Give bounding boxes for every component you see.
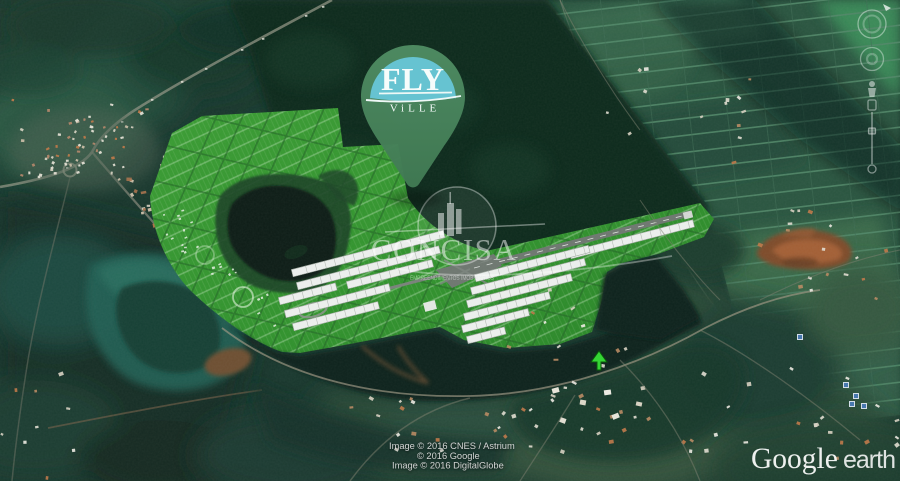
svg-text:CONCISA: CONCISA: [371, 232, 518, 267]
svg-text:FLY: FLY: [381, 61, 445, 97]
svg-text:earth: earth: [843, 446, 895, 474]
svg-text:ViLLE: ViLLE: [390, 103, 441, 115]
svg-text:Google: Google: [751, 443, 838, 475]
svg-text:© 2016 Google: © 2016 Google: [417, 451, 480, 461]
svg-text:Image © 2016 DigitalGlobe: Image © 2016 DigitalGlobe: [392, 461, 504, 471]
svg-text:Image © 2016 CNES / Astrium: Image © 2016 CNES / Astrium: [389, 441, 515, 451]
